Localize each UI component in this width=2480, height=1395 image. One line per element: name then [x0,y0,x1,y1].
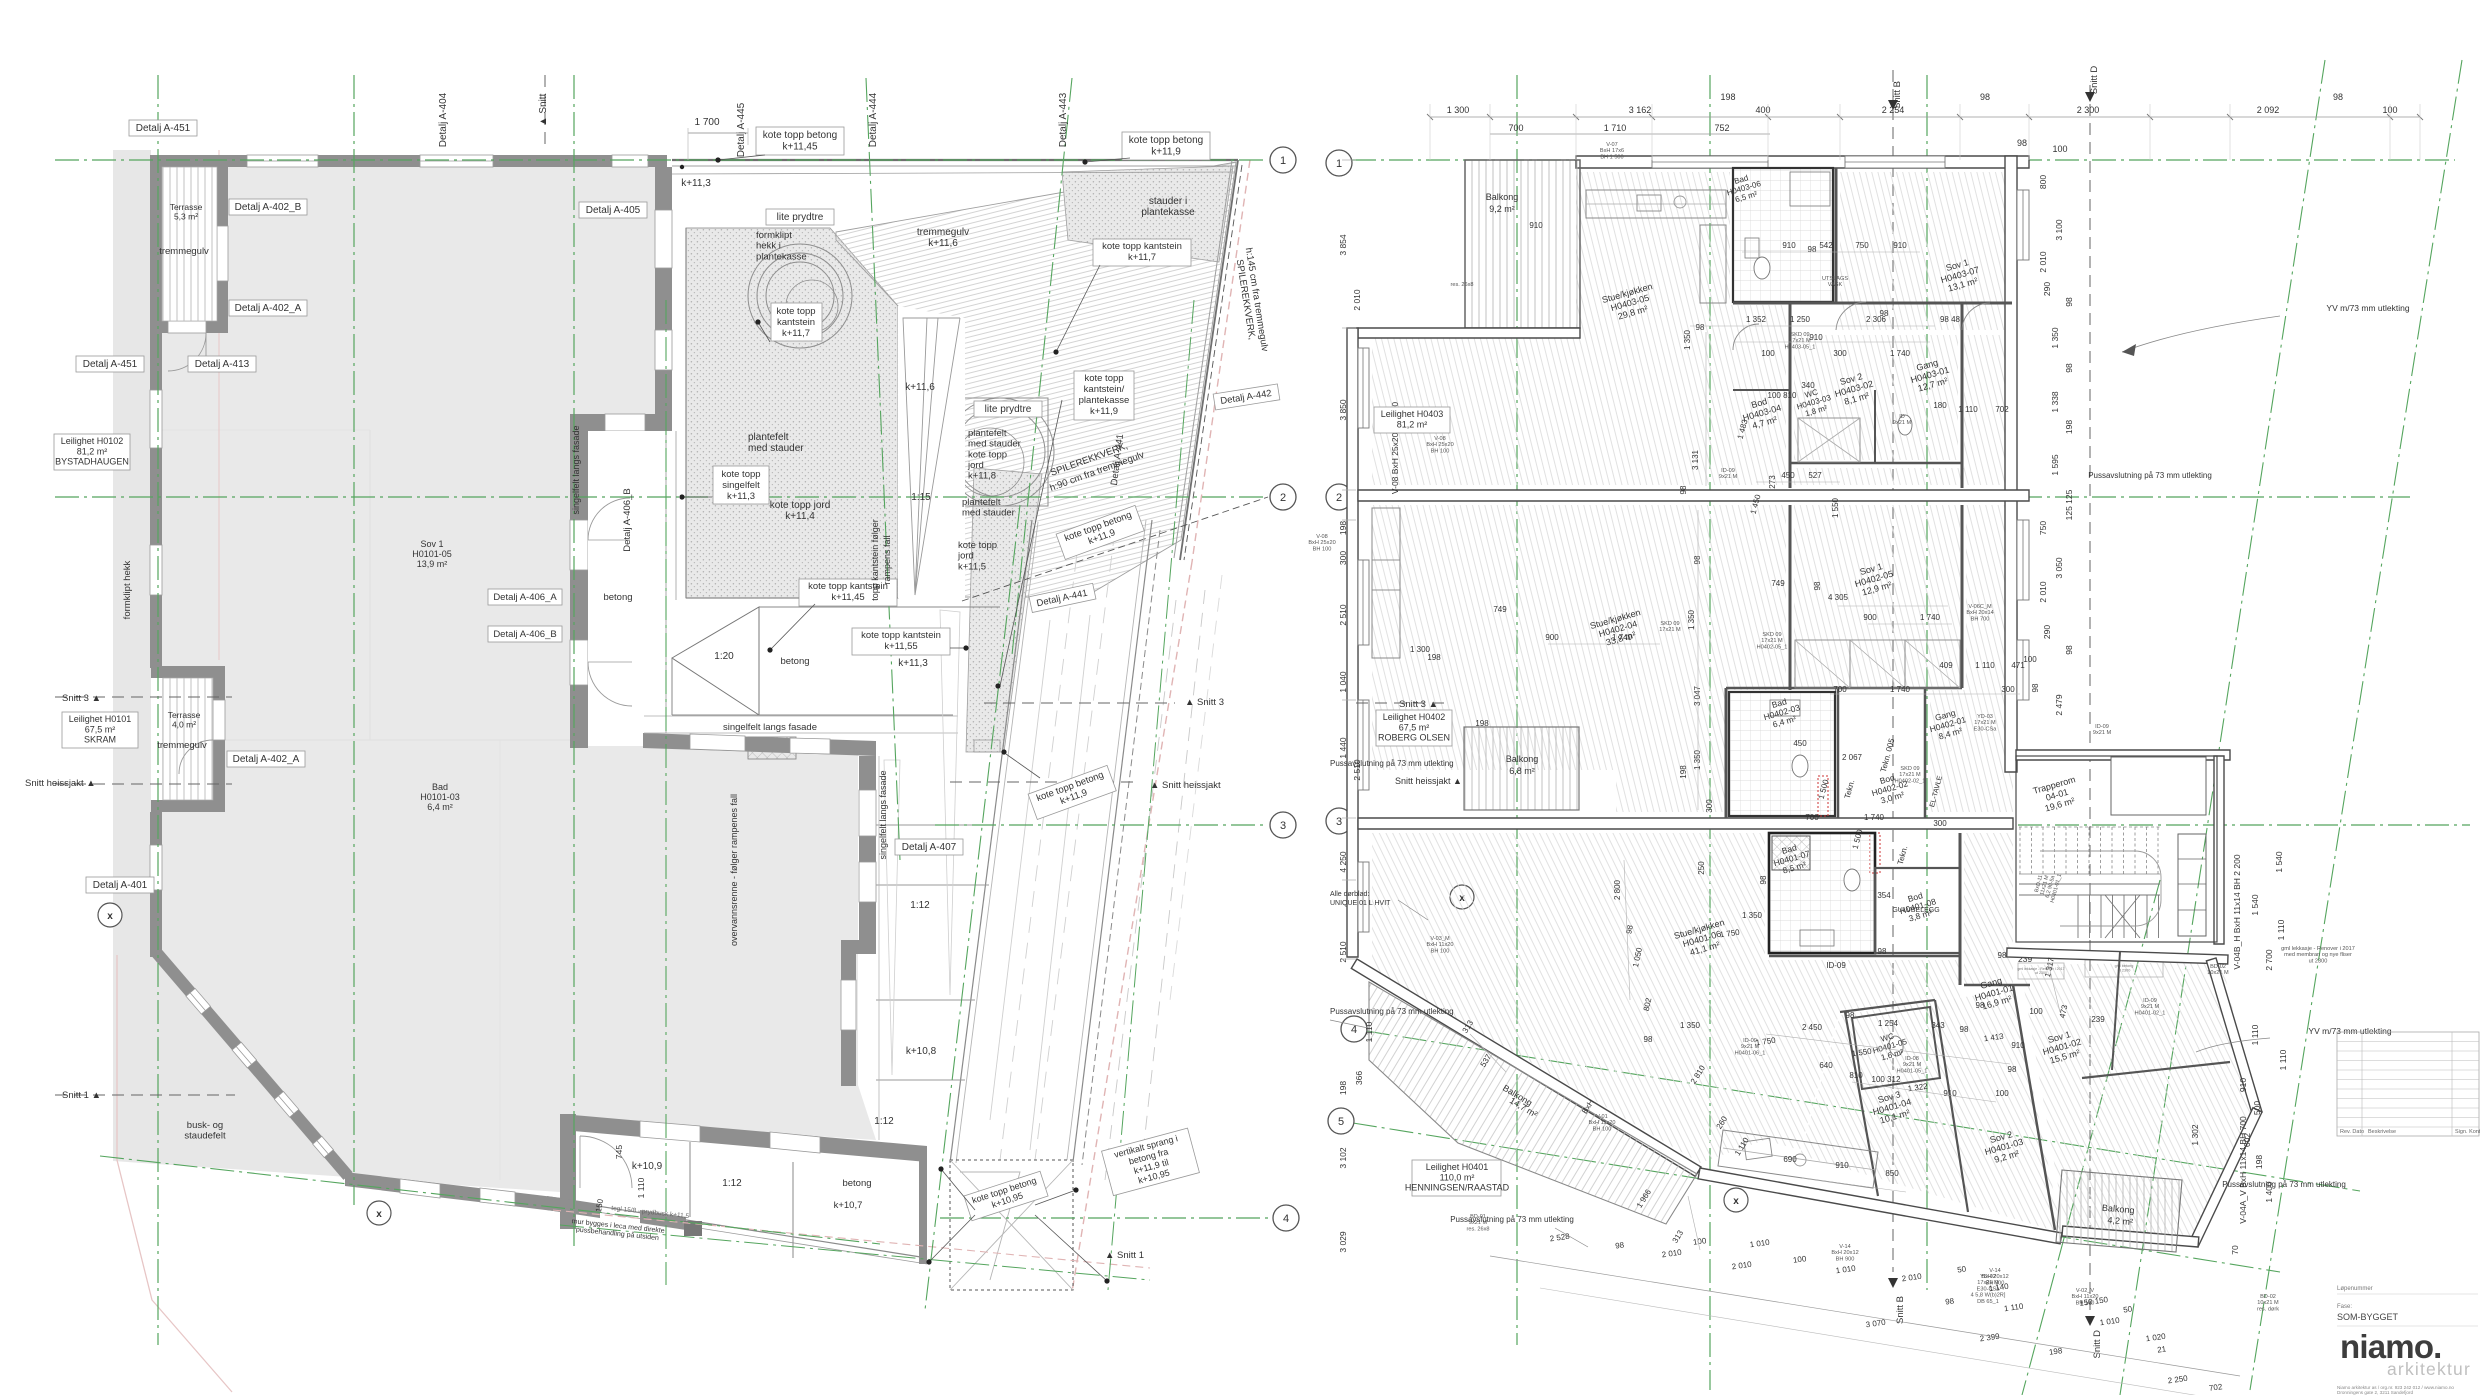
svg-text:300: 300 [2001,685,2015,694]
svg-text:98: 98 [1696,323,1705,332]
svg-text:2: 2 [1280,492,1286,504]
svg-text:450: 450 [1781,471,1795,480]
svg-text:Detalj A-404: Detalj A-404 [438,92,449,147]
svg-text:2 067: 2 067 [1842,753,1863,762]
svg-text:2 254: 2 254 [1882,105,1905,115]
svg-text:2: 2 [1336,492,1342,504]
svg-text:3 162: 3 162 [1629,105,1652,115]
svg-text:3 102: 3 102 [1338,1147,1348,1169]
svg-text:700: 700 [1805,813,1819,822]
svg-text:arkitektur: arkitektur [2387,1359,2471,1379]
svg-text:98: 98 [2064,297,2074,307]
svg-text:1 550: 1 550 [1831,497,1840,518]
svg-text:702: 702 [2208,1382,2223,1393]
svg-text:2 800: 2 800 [1613,879,1622,900]
svg-text:1: 1 [1280,155,1286,167]
svg-text:290: 290 [2042,625,2052,639]
svg-text:BD-0210x21 Mres. dørk: BD-0210x21 Mres. dørk [2257,1294,2279,1312]
svg-text:x: x [376,1209,382,1220]
svg-text:1 740: 1 740 [1612,633,1633,642]
svg-text:1 300: 1 300 [1447,105,1470,115]
svg-text:3 131: 3 131 [1691,449,1700,470]
svg-text:700: 700 [1833,685,1847,694]
svg-text:198: 198 [1338,521,1348,535]
svg-text:1 352: 1 352 [1746,315,1767,324]
svg-text:6,8 m²: 6,8 m² [1509,766,1535,776]
svg-text:100: 100 [2023,655,2037,664]
svg-text:Detalj A-443: Detalj A-443 [1058,92,1069,147]
svg-text:1 110: 1 110 [1975,661,1995,670]
svg-text:910: 910 [1835,1161,1849,1170]
svg-text:V-04A_V BxH 11x14 BH 700: V-04A_V BxH 11x14 BH 700 [2238,1116,2248,1224]
svg-text:98: 98 [1960,1025,1969,1034]
svg-text:Detalj A-445: Detalj A-445 [736,102,747,157]
svg-text:98: 98 [1759,875,1768,884]
svg-text:1:15: 1:15 [911,492,931,503]
svg-text:2 010: 2 010 [1352,289,1362,311]
svg-text:Snitt heissjakt ▲: Snitt heissjakt ▲ [1395,776,1462,786]
svg-text:198: 198 [1338,1081,1348,1095]
svg-text:1 250: 1 250 [1790,315,1811,324]
svg-text:Detalj A-406_B: Detalj A-406_B [622,488,633,551]
svg-text:749: 749 [1771,579,1785,588]
svg-text:SOM-BYGGET: SOM-BYGGET [2337,1312,2399,1322]
svg-text:700: 700 [1508,123,1523,133]
svg-text:98: 98 [1976,1001,1985,1010]
svg-text:betong: betong [842,1178,871,1189]
svg-text:343: 343 [1931,1021,1945,1030]
svg-text:850: 850 [1885,1169,1899,1178]
svg-text:Pussavslutning på 73 mm utlekt: Pussavslutning på 73 mm utlekting [1450,1215,1574,1224]
svg-text:98: 98 [1945,1296,1956,1306]
svg-text:Fase:: Fase: [2337,1304,2352,1310]
svg-text:2 510: 2 510 [1338,604,1348,626]
svg-text:1 300: 1 300 [1410,645,1431,654]
svg-text:800: 800 [2038,175,2048,189]
svg-text:k+11,3: k+11,3 [898,658,928,669]
svg-text:Balkong: Balkong [1506,754,1539,764]
svg-text:1:12: 1:12 [722,1178,742,1189]
svg-text:98 48: 98 48 [1940,315,1961,324]
svg-text:100: 100 [1792,1254,1807,1265]
svg-text:1:12: 1:12 [910,900,930,911]
svg-text:1 740: 1 740 [1920,613,1941,622]
svg-text:500: 500 [2252,1101,2262,1115]
svg-text:910: 910 [1529,221,1543,230]
svg-text:354: 354 [1877,891,1891,900]
svg-text:300: 300 [1338,551,1348,565]
svg-text:1 110: 1 110 [2250,1024,2260,1045]
svg-text:k+11,3: k+11,3 [681,178,711,189]
svg-text:k+10,9: k+10,9 [632,1161,663,1172]
svg-text:Detalj A-406_B: Detalj A-406_B [493,629,556,640]
svg-text:910: 910 [2011,1041,2025,1050]
svg-text:formklipt hekk: formklipt hekk [122,560,133,619]
svg-text:overvannsrenne - følger rampen: overvannsrenne - følger rampenes fall [729,794,739,946]
svg-text:1 740: 1 740 [1864,813,1885,822]
svg-text:SKD 0917x21 M: SKD 0917x21 M [1659,621,1681,633]
svg-text:98: 98 [2064,363,2074,373]
svg-text:k+11,6: k+11,6 [905,382,935,393]
svg-text:98: 98 [1679,485,1688,494]
svg-text:Detalj A-451: Detalj A-451 [136,123,191,134]
svg-text:1 350: 1 350 [1680,1021,1701,1030]
svg-text:singelfelt langs fasade: singelfelt langs fasade [571,425,581,514]
svg-text:98: 98 [1615,1240,1626,1250]
svg-text:Detalj A-407: Detalj A-407 [902,842,957,853]
svg-text:singelfelt langs fasade: singelfelt langs fasade [723,722,817,733]
svg-text:Snitt 1 ▲: Snitt 1 ▲ [62,1090,101,1101]
svg-text:3 854: 3 854 [1338,234,1348,256]
svg-text:1 740: 1 740 [1890,349,1911,358]
svg-text:70: 70 [2230,1245,2240,1255]
svg-text:198: 198 [1427,653,1441,662]
svg-text:910: 910 [1809,333,1823,342]
svg-text:21: 21 [2157,1344,2168,1354]
svg-text:198: 198 [1679,765,1688,779]
svg-text:100: 100 [2029,1007,2043,1016]
svg-text:2 300: 2 300 [2077,105,2100,115]
svg-text:betong: betong [780,656,809,667]
svg-text:UNIQUE 01 L HVIT: UNIQUE 01 L HVIT [1330,900,1391,907]
svg-text:Snitt D: Snitt D [2089,66,2100,95]
svg-text:3 047: 3 047 [1693,685,1702,706]
svg-text:640: 640 [1819,1061,1833,1070]
svg-text:k+10,8: k+10,8 [906,1046,937,1057]
svg-text:100 810: 100 810 [1768,391,1797,400]
svg-text:125 125: 125 125 [2064,489,2074,520]
svg-text:▲ Snitt 1: ▲ Snitt 1 [1105,1250,1144,1261]
svg-text:Løpenummer: Løpenummer [2337,1286,2373,1292]
svg-text:98: 98 [1980,92,1990,102]
svg-text:tremmegulv: tremmegulv [157,740,207,751]
svg-text:50: 50 [1957,1264,1968,1274]
svg-text:Snitt 3 ▲: Snitt 3 ▲ [1399,699,1438,710]
svg-text:98: 98 [1846,1011,1855,1020]
svg-text:Rev. Dato: Rev. Dato [2340,1129,2364,1135]
svg-text:198: 198 [2254,1155,2264,1169]
svg-text:910: 910 [2238,1078,2248,1092]
svg-text:910: 910 [1782,241,1796,250]
svg-text:100: 100 [1995,1089,2009,1098]
svg-text:810: 810 [1849,1071,1863,1080]
svg-text:180: 180 [1933,401,1947,410]
svg-text:Terrasse4,0 m²: Terrasse4,0 m² [168,710,201,730]
svg-text:1 110: 1 110 [1958,405,1978,414]
svg-text:Pussavslutning på 73 mm utlekt: Pussavslutning på 73 mm utlekting [1330,759,1454,768]
svg-text:1:12: 1:12 [874,1116,894,1127]
svg-text:4 305: 4 305 [1828,593,1849,602]
svg-text:1 254: 1 254 [1878,1019,1899,1028]
svg-text:100: 100 [1761,349,1775,358]
svg-text:340: 340 [1801,381,1815,390]
svg-text:Sign. Kontr: Sign. Kontr [2455,1129,2480,1135]
svg-text:Pussavslutning på 73 mm utlekt: Pussavslutning på 73 mm utlekting [1330,1007,1454,1016]
svg-text:1 350: 1 350 [1687,609,1696,630]
svg-text:3: 3 [1280,820,1286,832]
svg-text:Detalj A-402_A: Detalj A-402_A [233,754,300,765]
svg-text:750: 750 [1855,241,1869,250]
svg-text:YV m/73 mm utlekting: YV m/73 mm utlekting [2326,303,2409,313]
svg-text:1 350: 1 350 [1683,329,1692,350]
svg-text:2 092: 2 092 [2257,105,2280,115]
svg-text:3 029: 3 029 [1338,1231,1348,1253]
svg-text:9,2 m²: 9,2 m² [1489,204,1515,214]
svg-text:98: 98 [1880,309,1889,318]
svg-text:702: 702 [1995,405,2009,414]
svg-text:98: 98 [1878,947,1887,956]
svg-text:1: 1 [1336,158,1342,170]
svg-text:198: 198 [1475,719,1489,728]
svg-text:1 338: 1 338 [2050,391,2060,413]
svg-text:1 040: 1 040 [1338,671,1348,693]
svg-text:300: 300 [1705,799,1714,813]
svg-text:4: 4 [1283,1213,1289,1225]
svg-text:745: 745 [614,1145,624,1159]
svg-text:1 540: 1 540 [2250,894,2260,916]
svg-text:2 010: 2 010 [2038,581,2048,603]
svg-text:3 100: 3 100 [2054,219,2064,241]
svg-text:Terrasse5,3 m²: Terrasse5,3 m² [170,202,203,222]
svg-text:Snitt 3 ▲: Snitt 3 ▲ [62,693,101,704]
svg-text:1 350: 1 350 [2050,327,2060,349]
svg-text:1 440: 1 440 [1338,737,1348,759]
svg-text:910: 910 [1943,1089,1957,1098]
svg-text:2 450: 2 450 [1802,1023,1823,1032]
svg-text:betong: betong [603,592,632,603]
svg-text:98: 98 [1808,245,1817,254]
svg-text:1 110: 1 110 [2276,919,2286,940]
svg-text:x: x [1733,1196,1739,1207]
svg-text:Snitt D: Snitt D [2092,1330,2103,1359]
svg-text:98: 98 [2064,645,2074,655]
svg-text:290: 290 [2042,282,2052,296]
svg-text:Snitt B: Snitt B [1895,1296,1906,1324]
svg-text:topp kantstein følger: topp kantstein følger [870,519,880,601]
svg-text:98: 98 [2008,1065,2017,1074]
svg-text:Detalj A-402_B: Detalj A-402_B [235,202,302,213]
svg-text:98: 98 [1813,581,1822,590]
svg-text:100: 100 [2052,144,2067,154]
svg-text:366: 366 [1354,1071,1364,1085]
svg-text:k+10,7: k+10,7 [834,1200,863,1211]
svg-text:527: 527 [1808,471,1822,480]
svg-text:198: 198 [1720,92,1735,102]
svg-text:Balkong: Balkong [1486,192,1519,202]
svg-text:300: 300 [1933,819,1947,828]
svg-text:98: 98 [2031,683,2040,692]
svg-text:ID-09: ID-09 [1826,961,1846,970]
svg-text:Detalj A-405: Detalj A-405 [586,205,641,216]
svg-text:▲ Snitt heissjakt: ▲ Snitt heissjakt [1150,780,1221,791]
svg-text:4 250: 4 250 [1338,851,1348,873]
svg-text:1 302: 1 302 [2190,1124,2200,1146]
svg-text:2 479: 2 479 [2054,694,2064,716]
svg-text:▲ Snitt: ▲ Snitt [538,93,549,126]
svg-text:98: 98 [2017,138,2027,148]
svg-text:1 110: 1 110 [1364,1021,1374,1042]
svg-text:tremmegulv: tremmegulv [159,246,209,257]
svg-text:250: 250 [1697,861,1706,875]
svg-text:1 350: 1 350 [1693,749,1702,770]
svg-text:749: 749 [1493,605,1507,614]
svg-text:singelfelt langs fasade: singelfelt langs fasade [878,770,888,859]
svg-text:BD-0210x21 M: BD-0210x21 M [2207,964,2229,976]
svg-text:1 540: 1 540 [2274,851,2284,873]
svg-text:1 595: 1 595 [2050,454,2060,476]
svg-text:Dronningens gate 2, 3211 Sande: Dronningens gate 2, 3211 Sandefjord [2337,1390,2413,1395]
svg-text:ID-099x21 M: ID-099x21 M [2093,724,2112,736]
svg-text:Detalj A-413: Detalj A-413 [195,359,250,370]
svg-text:100: 100 [1692,1236,1707,1247]
svg-text:1 740: 1 740 [1890,685,1911,694]
svg-text:Detalj A-444: Detalj A-444 [868,92,879,147]
svg-text:450: 450 [1793,739,1807,748]
svg-text:Pussavslutning på 73 mm utlekt: Pussavslutning på 73 mm utlekting [2222,1180,2346,1189]
svg-text:▲ Snitt 3: ▲ Snitt 3 [1185,697,1224,708]
svg-text:752: 752 [1714,123,1729,133]
svg-text:50: 50 [2123,1304,2134,1314]
svg-text:2 510: 2 510 [1338,941,1348,963]
svg-text:98: 98 [1998,951,2007,960]
svg-text:239: 239 [2091,1015,2105,1024]
svg-text:1:20: 1:20 [714,651,734,662]
svg-text:690: 690 [1783,1155,1797,1164]
svg-text:rampens fall: rampens fall [882,535,892,584]
svg-text:V-04B_H BxH 11x14 BH 2 200: V-04B_H BxH 11x14 BH 2 200 [2232,854,2242,969]
svg-text:2 700: 2 700 [2264,949,2274,971]
svg-text:kote toppkantsteink+11,7: kote toppkantsteink+11,7 [776,306,815,339]
svg-text:Alle dørblad:: Alle dørblad: [1330,891,1369,898]
svg-text:1 350: 1 350 [1742,911,1763,920]
svg-text:409: 409 [1939,661,1953,670]
svg-text:98: 98 [1644,1035,1653,1044]
svg-text:900: 900 [1863,613,1877,622]
svg-text:ID-099x21 M: ID-099x21 M [1719,468,1738,480]
svg-text:1 710: 1 710 [1604,123,1627,133]
svg-text:750: 750 [2038,521,2048,535]
svg-text:Pussavslutning på 73 mm utlekt: Pussavslutning på 73 mm utlekting [2088,471,2212,480]
svg-text:lite prydtre: lite prydtre [777,212,824,223]
svg-text:Detalj A-401: Detalj A-401 [93,880,148,891]
svg-text:100 312: 100 312 [1872,1075,1901,1084]
svg-text:Detalj A-451: Detalj A-451 [83,359,138,370]
svg-text:1 110: 1 110 [636,1177,646,1198]
svg-text:busk- ogstaudefelt: busk- ogstaudefelt [184,1120,226,1142]
svg-text:stauder iplantekasse: stauder iplantekasse [1141,196,1195,218]
svg-text:3 850: 3 850 [1338,399,1348,421]
svg-text:res. 26x8: res. 26x8 [1450,282,1473,288]
svg-text:3 050: 3 050 [2054,557,2064,579]
svg-text:542: 542 [1819,241,1833,250]
svg-text:kote toppsingelfeltk+11,3: kote toppsingelfeltk+11,3 [721,469,760,502]
svg-text:98: 98 [2333,92,2343,102]
svg-text:910: 910 [1893,241,1907,250]
svg-text:3: 3 [1336,816,1342,828]
svg-text:lite prydtre: lite prydtre [985,404,1032,415]
svg-text:Detalj A-406_A: Detalj A-406_A [493,592,557,603]
svg-text:GULVBELEGG: GULVBELEGG [1892,907,1939,914]
svg-text:x: x [107,911,113,922]
svg-text:Snitt heissjakt ▲: Snitt heissjakt ▲ [25,778,96,789]
svg-text:5: 5 [1338,1116,1344,1128]
svg-text:YV m/73 mm utlekting: YV m/73 mm utlekting [2308,1026,2391,1036]
svg-text:198: 198 [2064,420,2074,434]
svg-text:98: 98 [1693,555,1702,564]
svg-text:300: 300 [1833,349,1847,358]
svg-text:1 110: 1 110 [2278,1049,2288,1070]
svg-text:1 700: 1 700 [694,117,719,128]
svg-text:2 010: 2 010 [2038,251,2048,273]
svg-text:Beskrivelse: Beskrivelse [2368,1129,2396,1135]
svg-text:900: 900 [1545,633,1559,642]
svg-text:Detalj A-402_A: Detalj A-402_A [235,303,302,314]
